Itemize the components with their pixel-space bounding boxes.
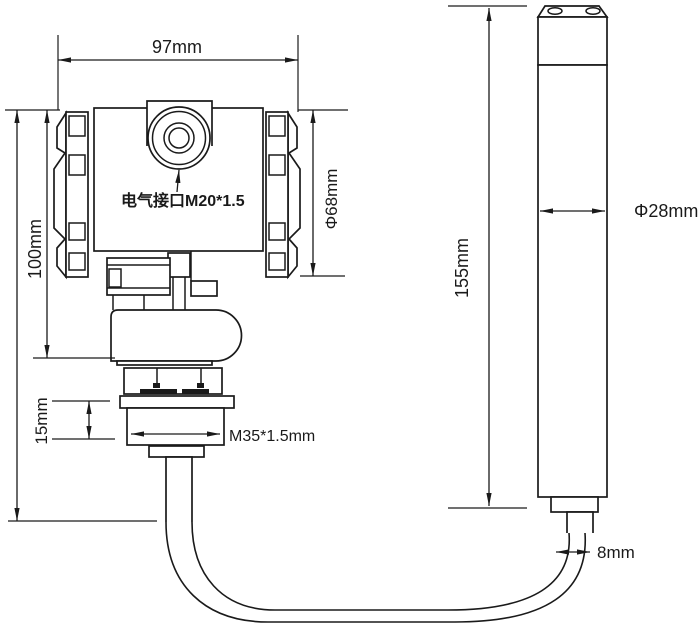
right-neck-step: [191, 281, 217, 296]
technical-drawing-canvas: 97mm 100mm Φ68mm 15mm M35*1.5mm 155mm: [0, 0, 700, 629]
probe-length-label: 155mm: [452, 238, 472, 298]
probe: [538, 6, 607, 533]
probe-cap: [538, 17, 607, 65]
right-rib-profile: [288, 113, 300, 277]
sensor-capsule: [111, 310, 242, 361]
left-rib-profile: [54, 113, 66, 277]
cable-inner-edge: [192, 522, 569, 610]
outlet-stem: [166, 457, 192, 522]
right-rib-cover: [266, 112, 300, 277]
terminal-strip: [107, 258, 170, 295]
seal-pin: [197, 383, 204, 388]
probe-diameter-label: Φ28mm: [634, 201, 698, 221]
dimension-head-diameter: Φ68mm: [298, 110, 348, 276]
dimension-probe-length: 155mm: [448, 6, 527, 508]
thread-spec-label: M35*1.5mm: [229, 428, 315, 445]
seal-pin: [153, 383, 160, 388]
junction-block: [168, 253, 190, 277]
probe-body: [538, 65, 607, 497]
probe-cable-gland: [567, 512, 593, 533]
probe-bottom-step: [551, 497, 598, 512]
head-width-label: 97mm: [152, 37, 202, 57]
capsule-step-plate: [117, 361, 212, 365]
dimension-drawing: 97mm 100mm Φ68mm 15mm M35*1.5mm 155mm: [0, 0, 700, 629]
gasket-bar: [182, 389, 209, 394]
head-bottom-attachments: [107, 251, 217, 310]
collar: [149, 446, 204, 457]
threaded-section: [127, 408, 224, 445]
left-rib-cover: [54, 112, 88, 277]
flange-plate: [120, 396, 234, 408]
cable-outer-edge: [166, 522, 585, 622]
gasket-bar: [140, 389, 177, 394]
thread-height-label: 15mm: [32, 397, 51, 444]
conduit-circle-outer: [148, 107, 210, 169]
head-diameter-label: Φ68mm: [322, 169, 341, 230]
dimension-thread-height: 15mm: [32, 397, 115, 444]
head-height-label: 100mm: [25, 219, 45, 279]
dimension-cable-diameter: 8mm: [556, 543, 635, 562]
electrical-port-label: 电气接口M20*1.5: [121, 191, 245, 210]
process-connection: [111, 310, 242, 522]
cable-diameter-label: 8mm: [597, 543, 635, 562]
cable: [166, 522, 585, 622]
